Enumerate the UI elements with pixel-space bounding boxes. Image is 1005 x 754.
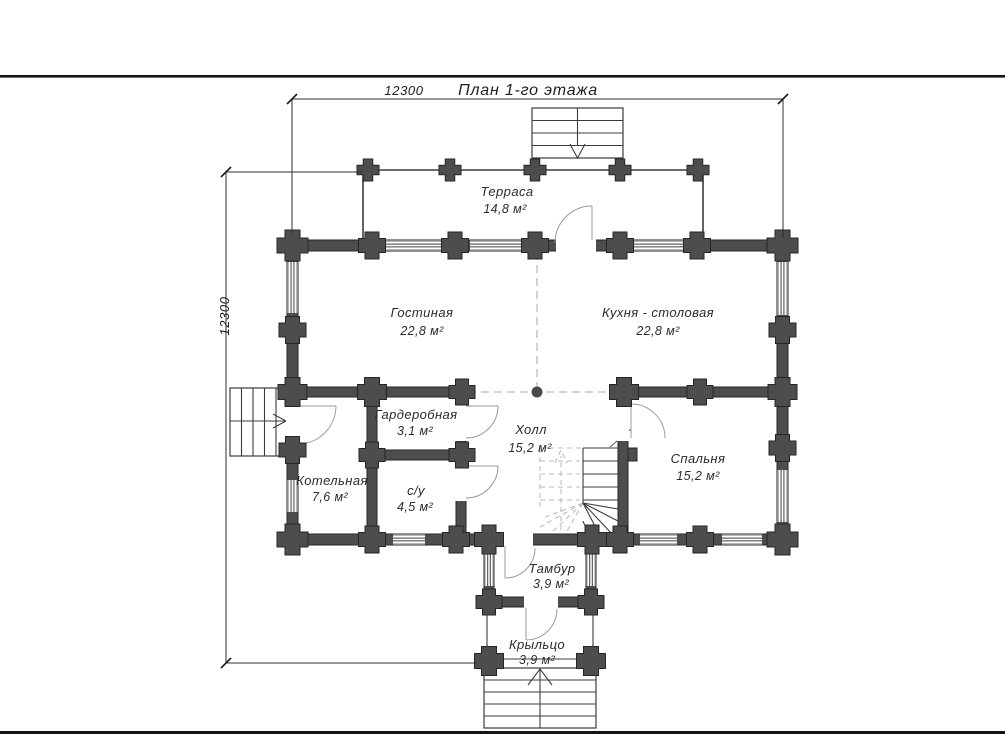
window	[586, 553, 596, 586]
room-name: Спальня	[671, 451, 726, 466]
dimension-width-label: 12300	[384, 83, 423, 98]
room-name: Гостиная	[391, 305, 454, 320]
room-name: Терраса	[481, 184, 534, 199]
drawing-sheet: План 1-го этажа 12300 12300 Терраса 14,8…	[0, 0, 1005, 754]
stairs-terrace-entry	[532, 108, 623, 158]
log-post	[279, 317, 306, 344]
window	[777, 262, 788, 315]
log-post	[449, 379, 475, 405]
room-area: 22,8 м²	[399, 324, 444, 338]
stairs-porch	[484, 668, 596, 728]
log-post	[522, 232, 549, 259]
stairs-internal-upper-flight-dashed	[540, 448, 583, 533]
door-vestibule-porch	[524, 596, 558, 640]
wall-stub-stairs	[628, 448, 637, 461]
log-post	[475, 525, 504, 554]
log-post	[578, 525, 607, 554]
stairs-internal	[540, 429, 631, 534]
sheet-border-bottom	[0, 731, 1005, 734]
room-label-wardrobe: Гардеробная 3,1 м²	[374, 407, 457, 438]
log-post	[684, 232, 711, 259]
log-post	[578, 589, 604, 615]
room-area: 7,6 м²	[312, 490, 348, 504]
room-name: с/у	[407, 483, 426, 498]
log-column-dot	[532, 387, 543, 398]
log-post	[449, 442, 475, 468]
room-area: 3,9 м²	[519, 653, 555, 667]
room-label-kitchen: Кухня - столовая 22,8 м²	[602, 305, 714, 338]
log-post	[607, 526, 634, 553]
log-post	[609, 159, 631, 181]
window	[777, 470, 788, 522]
log-post	[476, 589, 502, 615]
log-post	[769, 435, 796, 462]
doors	[286, 206, 665, 640]
log-post	[442, 232, 469, 259]
window	[632, 240, 686, 251]
log-post	[769, 317, 796, 344]
log-post	[768, 378, 797, 407]
room-label-wc: с/у 4,5 м²	[397, 483, 433, 514]
room-name: Крыльцо	[509, 637, 565, 652]
room-label-terrace: Терраса 14,8 м²	[481, 184, 534, 216]
room-label-living: Гостиная 22,8 м²	[391, 305, 454, 338]
room-area: 22,8 м²	[635, 324, 680, 338]
room-name: Котельная	[296, 473, 368, 488]
room-area: 3,1 м²	[397, 424, 433, 438]
room-name: Тамбур	[529, 561, 576, 576]
log-post	[610, 378, 639, 407]
room-name: Кухня - столовая	[602, 305, 714, 320]
room-label-vestibule: Тамбур 3,9 м²	[529, 561, 576, 591]
room-area: 15,2 м²	[508, 441, 552, 455]
log-post	[439, 159, 461, 181]
log-post	[524, 159, 546, 181]
dimension-height-label: 12300	[217, 296, 232, 335]
log-post	[687, 526, 714, 553]
stairs-internal-lower-flight	[583, 448, 618, 534]
log-post	[607, 232, 634, 259]
log-post	[357, 159, 379, 181]
log-post	[687, 379, 713, 405]
log-post	[277, 524, 308, 555]
floor-plan-canvas: План 1-го этажа 12300 12300 Терраса 14,8…	[0, 0, 1005, 754]
room-area: 4,5 м²	[397, 500, 433, 514]
log-post	[687, 159, 709, 181]
window	[380, 240, 448, 251]
log-post	[358, 378, 387, 407]
room-area: 3,9 м²	[533, 577, 569, 591]
door-terrace	[555, 206, 596, 252]
window	[287, 262, 298, 313]
room-name: Гардеробная	[374, 407, 457, 422]
room-label-boiler: Котельная 7,6 м²	[296, 473, 368, 504]
plan-title: План 1-го этажа	[458, 82, 598, 99]
sheet-border-top	[0, 75, 1005, 78]
window	[484, 553, 494, 586]
log-post	[767, 524, 798, 555]
room-label-porch: Крыльцо 3,9 м²	[509, 637, 565, 667]
window	[722, 534, 762, 545]
log-post	[277, 230, 308, 261]
room-label-bedroom: Спальня 15,2 м²	[671, 451, 726, 483]
room-name: Холл	[514, 422, 547, 437]
door-wc	[455, 464, 498, 501]
window	[393, 534, 425, 545]
room-label-hall: Холл 15,2 м²	[508, 422, 552, 455]
open-boundary-lines	[468, 252, 612, 398]
room-area: 14,8 м²	[483, 202, 527, 216]
log-post	[359, 526, 386, 553]
window	[640, 534, 677, 545]
door-wardrobe	[455, 404, 498, 441]
room-area: 15,2 м²	[676, 469, 720, 483]
log-post	[359, 442, 385, 468]
